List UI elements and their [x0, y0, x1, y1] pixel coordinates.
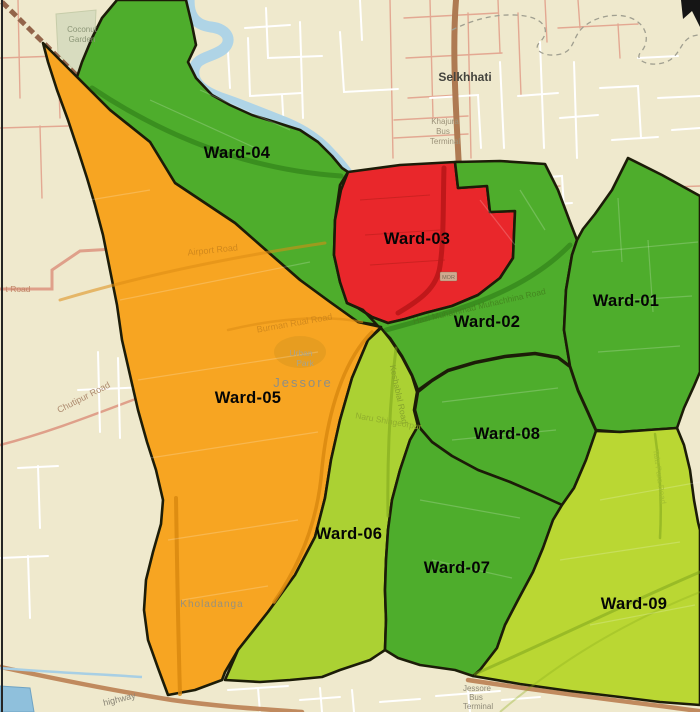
ward-01-label: Ward-01 [593, 292, 660, 310]
label-khajura-line2: Bus [436, 127, 450, 136]
label-jessore-bus-terminal-line3: Terminal [463, 702, 493, 711]
pond [0, 686, 34, 712]
label-jessore-bus-terminal-line1: Jessore [463, 684, 492, 693]
label-jessore-bus-terminal-line2: Bus [469, 693, 483, 702]
label-coconut-line1: Coconut [67, 25, 98, 34]
label-khajura-line1: Khajura [431, 117, 459, 126]
ward-03-label: Ward-03 [384, 230, 451, 248]
jessore-ward-map: Ward-04Ward-03Ward-02Ward-01Ward-05Ward-… [0, 0, 700, 712]
ward-05-label: Ward-05 [215, 389, 282, 407]
ward-08-label: Ward-08 [474, 425, 541, 443]
label-t-road: t Road [5, 284, 30, 294]
map-canvas: Ward-04Ward-03Ward-02Ward-01Ward-05Ward-… [0, 0, 700, 712]
ward-06-label: Ward-06 [316, 525, 383, 543]
label-khajura-line3: Terminal [430, 137, 460, 146]
label-kholadanga: Kholadanga [180, 599, 243, 610]
label-selkhhati: Selkhhati [438, 70, 491, 84]
ward-07-label: Ward-07 [424, 559, 491, 577]
label-mor: MOR [442, 275, 455, 281]
ward-04-label: Ward-04 [204, 144, 271, 162]
ward-02-label: Ward-02 [454, 313, 521, 331]
label-urban-park-line1: Urban [289, 348, 312, 358]
label-jessore-city: Jessore [273, 375, 333, 390]
ward-09-label: Ward-09 [601, 595, 668, 613]
label-urban-park-line2: Park [296, 358, 314, 368]
label-coconut-line2: Garden [69, 35, 96, 44]
